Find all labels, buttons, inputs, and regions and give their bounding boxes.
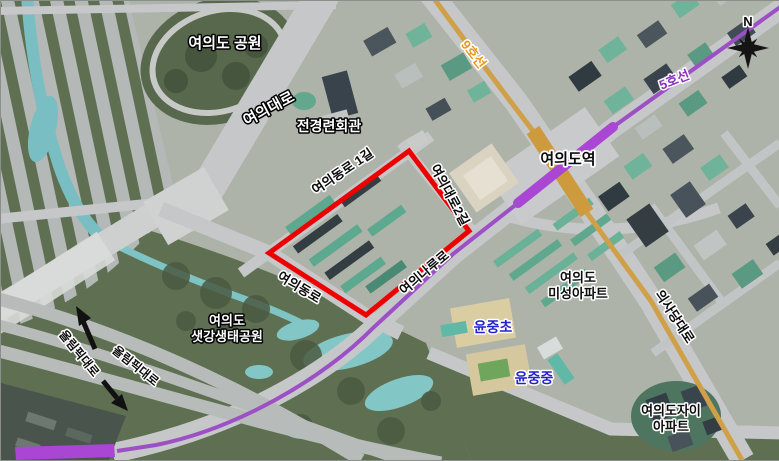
label-fki-building: 전경련회관 bbox=[297, 118, 362, 134]
label-saetgang-line1: 여의도 bbox=[209, 313, 245, 328]
label-jai-apt-line1: 여의도자이 bbox=[641, 403, 701, 418]
label-misung-apt-line2: 미성아파트 bbox=[548, 286, 608, 301]
label-yeouido-station: 여의도역 bbox=[540, 150, 595, 168]
label-saetgang-line2: 샛강생태공원 bbox=[191, 329, 263, 344]
label-yunjung-elementary: 윤중초 bbox=[474, 319, 513, 335]
label-yunjung-middle: 윤중중 bbox=[515, 370, 554, 386]
label-jai-apt-line2: 아파트 bbox=[653, 419, 689, 434]
map-canvas: N 여의도 공원 여의대로 전경련회관 여의동로 1길 여의대로2길 9호선 5… bbox=[1, 1, 779, 460]
label-misung-apt-line1: 여의도 bbox=[560, 270, 596, 285]
satellite-map: N 여의도 공원 여의대로 전경련회관 여의동로 1길 여의대로2길 9호선 5… bbox=[0, 0, 779, 461]
label-yeouido-park: 여의도 공원 bbox=[188, 34, 261, 52]
compass-north-label: N bbox=[743, 14, 752, 29]
